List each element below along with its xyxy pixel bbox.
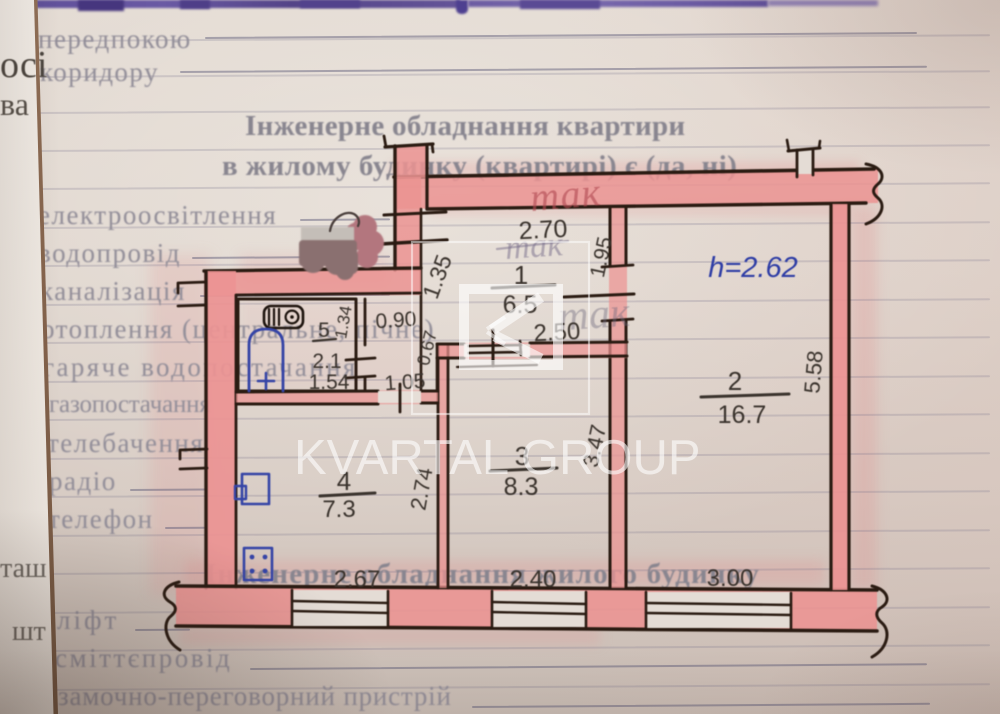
svg-text:KVARTAL GROUP: KVARTAL GROUP (294, 431, 701, 485)
